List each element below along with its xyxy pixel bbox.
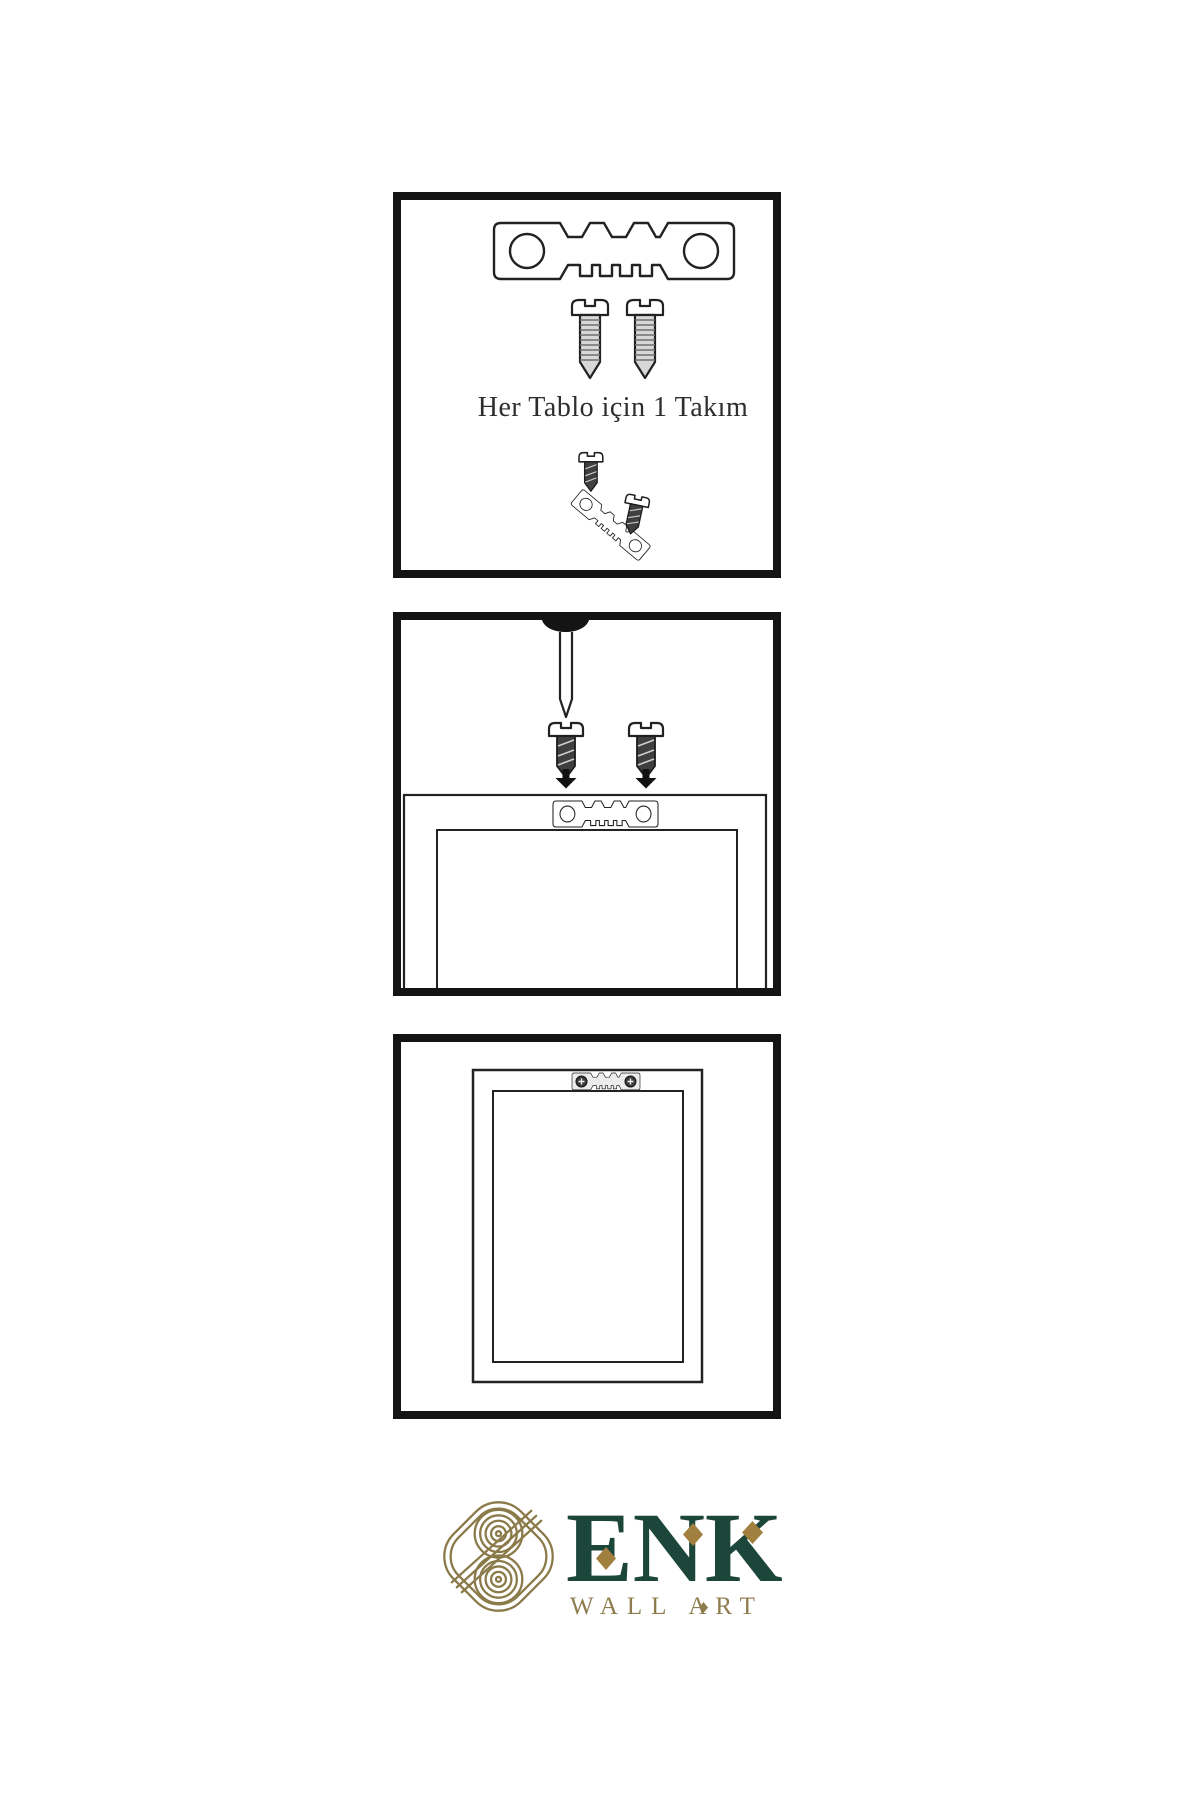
screw-icon (627, 300, 663, 378)
screw-head-icon (625, 1076, 636, 1087)
arrow-down-icon (636, 769, 657, 789)
logo-title: ENK (566, 1498, 796, 1598)
picture-frame-outline (473, 1070, 702, 1382)
knot-monogram-icon (435, 1488, 562, 1625)
screw-icon (572, 300, 608, 378)
mounted-sawtooth-hanger-icon (572, 1073, 640, 1090)
logo-subtitle: WALL ART (570, 1593, 800, 1621)
step1-caption: Her Tablo için 1 Takım (448, 392, 778, 424)
step1-panel (393, 192, 781, 578)
screw-head-icon (576, 1076, 587, 1087)
step2-panel (393, 612, 781, 996)
frame-back-outline (404, 795, 766, 988)
screw-icon (579, 453, 603, 492)
mounting-illustration (401, 620, 773, 988)
hanger-kit-illustration (401, 200, 773, 570)
hung-frame-illustration (401, 1042, 773, 1411)
frame-back-inner-outline (437, 830, 737, 988)
nail-icon (542, 620, 589, 717)
arrow-down-icon (556, 769, 577, 789)
step3-panel (393, 1034, 781, 1419)
instruction-sheet: Her Tablo için 1 Takım (0, 0, 1200, 1800)
picture-frame-inner-outline (493, 1091, 683, 1362)
sawtooth-hanger-icon (553, 801, 658, 827)
sawtooth-hanger-icon (494, 223, 734, 279)
assembly-preview (570, 453, 651, 561)
